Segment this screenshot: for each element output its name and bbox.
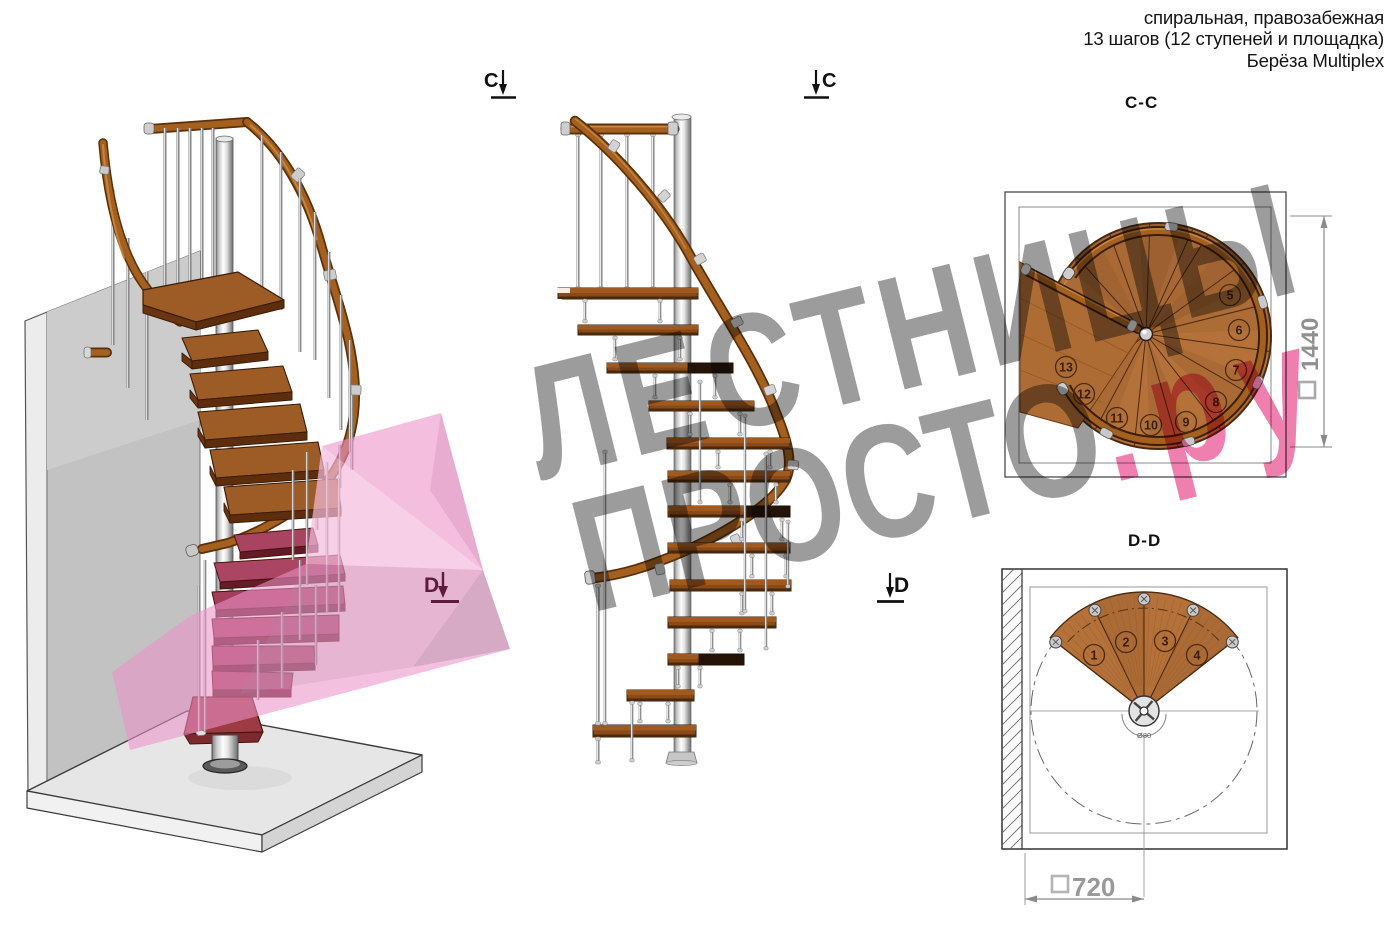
- svg-text:Ø80: Ø80: [1137, 731, 1151, 740]
- svg-text:C: C: [822, 70, 836, 92]
- svg-text:720: 720: [1072, 872, 1115, 902]
- svg-text:1: 1: [1091, 649, 1098, 663]
- svg-text:D: D: [894, 574, 909, 597]
- svg-text:D-D: D-D: [1128, 531, 1161, 550]
- svg-text:2: 2: [1123, 636, 1130, 650]
- svg-text:4: 4: [1194, 649, 1201, 663]
- svg-text:C: C: [484, 70, 498, 92]
- svg-text:D: D: [424, 574, 439, 597]
- svg-text:C-C: C-C: [1125, 93, 1158, 112]
- svg-text:3: 3: [1162, 635, 1169, 649]
